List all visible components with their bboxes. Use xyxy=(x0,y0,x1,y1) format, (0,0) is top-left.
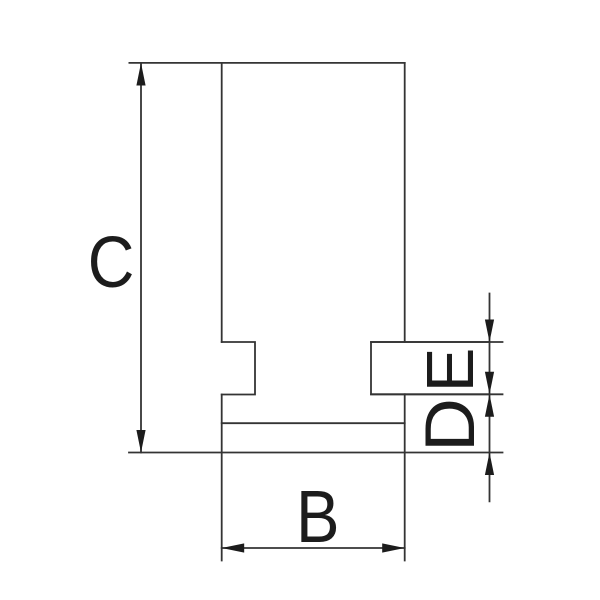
svg-text:B: B xyxy=(296,475,340,558)
svg-text:C: C xyxy=(88,222,135,303)
svg-text:D: D xyxy=(411,398,490,452)
svg-text:E: E xyxy=(414,348,488,393)
